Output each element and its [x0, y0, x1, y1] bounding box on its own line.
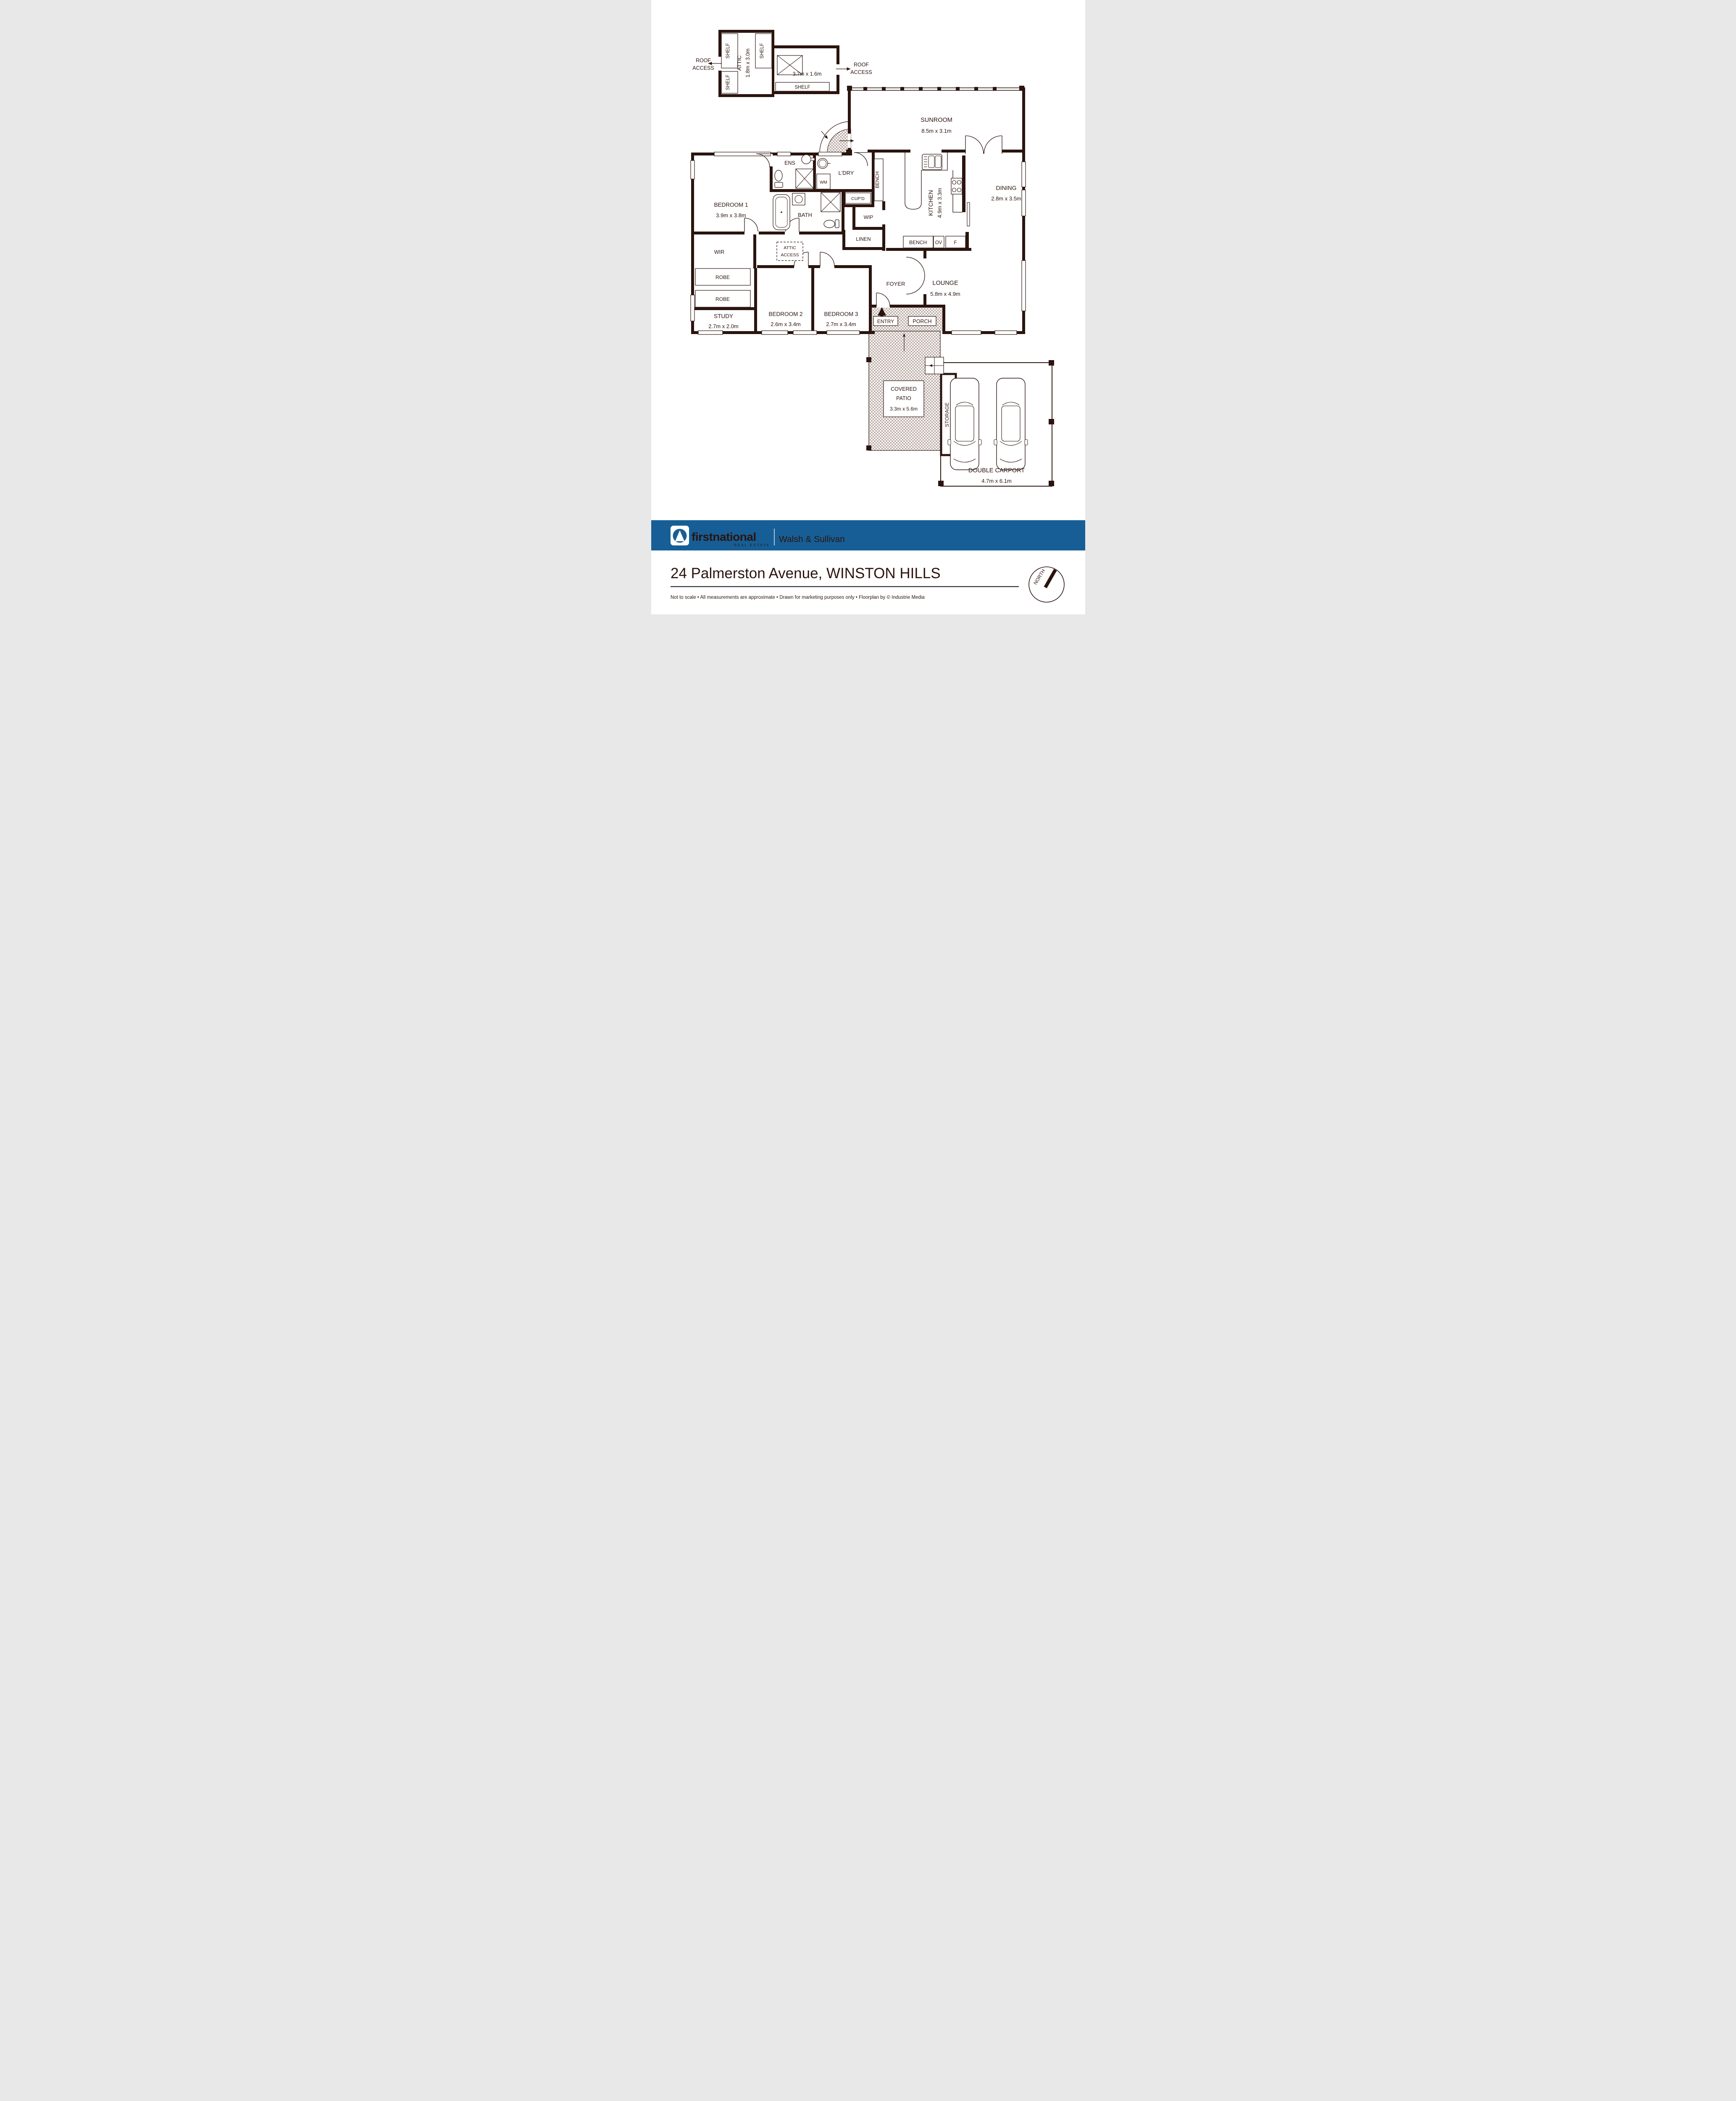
office-name: Walsh & Sullivan — [779, 534, 845, 544]
ens-label: ENS — [784, 160, 795, 166]
robe1-label: ROBE — [715, 274, 729, 280]
firstnational-logo-icon — [671, 526, 689, 545]
sunroom-label: SUNROOM — [921, 117, 952, 124]
sunroom-dims: 8.5m x 3.1m — [921, 128, 952, 134]
foyer-label: FOYER — [886, 281, 905, 287]
patio-line2: PATIO — [896, 395, 911, 401]
kitchen-dims: 4.9m x 3.3m — [936, 188, 943, 218]
bedroom1-label: BEDROOM 1 — [714, 202, 748, 208]
ens-fixtures — [775, 155, 815, 188]
bedroom2-label: BEDROOM 2 — [768, 311, 802, 317]
attic-wing-dims: 3.7m x 1.6m — [792, 71, 821, 77]
robe2-label: ROBE — [715, 296, 729, 302]
roof-access-right-line2: ACCESS — [850, 69, 872, 75]
footer: firstnational REAL ESTATE Walsh & Sulliv… — [651, 520, 1085, 602]
sunroom-window-wall — [847, 86, 1024, 91]
shelf-label: SHELF — [794, 85, 810, 90]
lounge-dims: 5.8m x 4.9m — [930, 291, 960, 297]
brand-name: firstnational — [692, 530, 756, 543]
brand-sub: REAL ESTATE — [734, 543, 770, 547]
bedroom1-dims: 3.9m x 3.8m — [716, 212, 746, 219]
storage-label: STORAGE — [944, 403, 950, 427]
floor-plan-svg: SUNROOM 8.5m x 3.1m KITCHEN 4.9m x 3.3m … — [651, 0, 1085, 614]
car-icon — [948, 378, 981, 470]
bath-fixtures — [773, 192, 840, 230]
bedroom3-dims: 2.7m x 3.4m — [826, 321, 856, 327]
shelf-label: SHELF — [760, 43, 765, 58]
door-gaps — [744, 134, 890, 308]
attic-access-line2: ACCESS — [781, 253, 799, 258]
disclaimer-text: Not to scale • All measurements are appr… — [671, 595, 925, 600]
patio-line1: COVERED — [891, 386, 917, 392]
laundry-label: L'DRY — [838, 170, 854, 176]
car-icon — [994, 378, 1028, 470]
attic-label: ATTIC — [736, 55, 742, 71]
fridge-label: F — [954, 240, 957, 245]
entry-label: ENTRY — [877, 319, 894, 324]
bench-strip-label: BENCH — [875, 171, 880, 188]
lounge-label: LOUNGE — [932, 280, 958, 287]
walls — [691, 30, 1025, 334]
linen-label: LINEN — [856, 236, 871, 242]
kitchen-bench-label: BENCH — [909, 240, 926, 245]
shelf-label: SHELF — [726, 74, 731, 90]
cupboard-label: CUP'D — [851, 196, 865, 201]
floorplan-page: SUNROOM 8.5m x 3.1m KITCHEN 4.9m x 3.3m … — [651, 0, 1085, 614]
carport-label: DOUBLE CARPORT — [968, 467, 1024, 474]
roof-access-right-line1: ROOF — [853, 62, 868, 68]
carport-dims: 4.7m x 6.1m — [981, 478, 1012, 484]
study-dims: 2.7m x 2.0m — [708, 323, 739, 329]
attic-access-line1: ATTIC — [784, 245, 796, 250]
wip-label: WIP — [863, 214, 873, 220]
roof-access-left-line1: ROOF — [695, 58, 710, 63]
attic-dims: 1.8m x 3.0m — [745, 49, 751, 78]
roof-access-left-line2: ACCESS — [692, 65, 714, 71]
bedroom2-dims: 2.6m x 3.4m — [771, 321, 801, 327]
dining-label: DINING — [996, 184, 1016, 191]
bedroom3-label: BEDROOM 3 — [824, 311, 858, 317]
study-label: STUDY — [714, 313, 733, 319]
wir-label: WIR — [714, 249, 724, 255]
shelf-label: SHELF — [726, 43, 731, 58]
north-compass-icon: NORTH — [1029, 567, 1064, 602]
patio-dims: 3.3m x 5.6m — [889, 406, 917, 412]
dining-dims: 2.8m x 3.5m — [991, 195, 1021, 202]
kitchen-label: KITCHEN — [927, 190, 934, 216]
oven-label: OV — [935, 240, 942, 245]
wm-label: WM — [820, 180, 827, 185]
bath-label: BATH — [798, 212, 812, 218]
porch-label: PORCH — [913, 319, 931, 324]
address-title: 24 Palmerston Avenue, WINSTON HILLS — [671, 565, 941, 582]
